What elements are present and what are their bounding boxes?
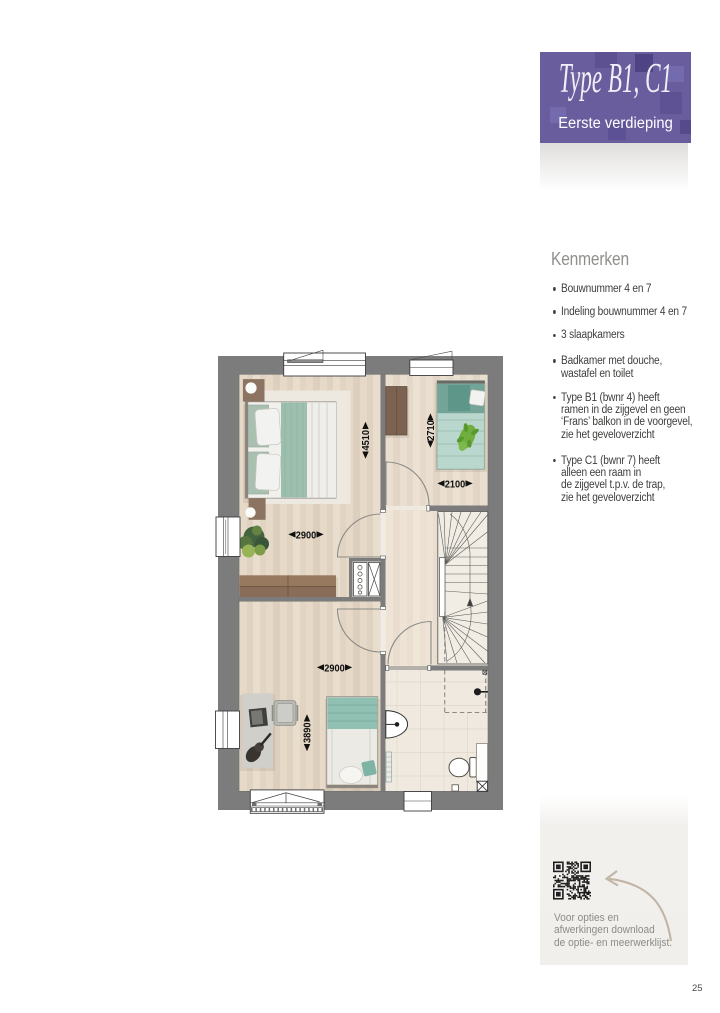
svg-text:2900: 2900 — [296, 529, 317, 541]
svg-text:4510: 4510 — [360, 430, 372, 451]
svg-text:2100: 2100 — [445, 478, 466, 490]
svg-text:2900: 2900 — [324, 662, 345, 674]
svg-text:3890: 3890 — [302, 722, 314, 743]
svg-text:2710: 2710 — [425, 420, 437, 441]
